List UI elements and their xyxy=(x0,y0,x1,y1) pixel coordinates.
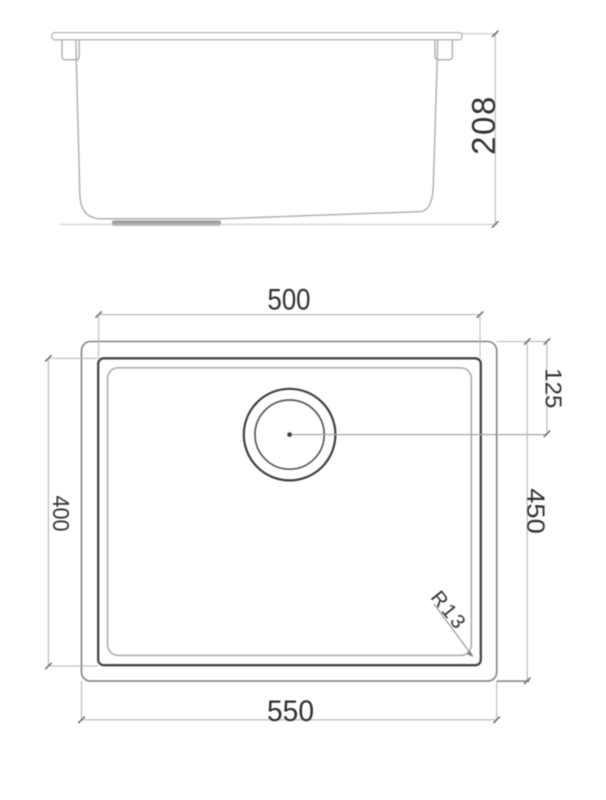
svg-text:550: 550 xyxy=(267,695,314,728)
svg-text:208: 208 xyxy=(465,95,502,155)
svg-text:125: 125 xyxy=(541,368,567,408)
svg-text:R13: R13 xyxy=(426,587,471,635)
svg-text:450: 450 xyxy=(521,488,549,534)
svg-text:500: 500 xyxy=(268,283,311,316)
svg-text:400: 400 xyxy=(48,496,74,532)
